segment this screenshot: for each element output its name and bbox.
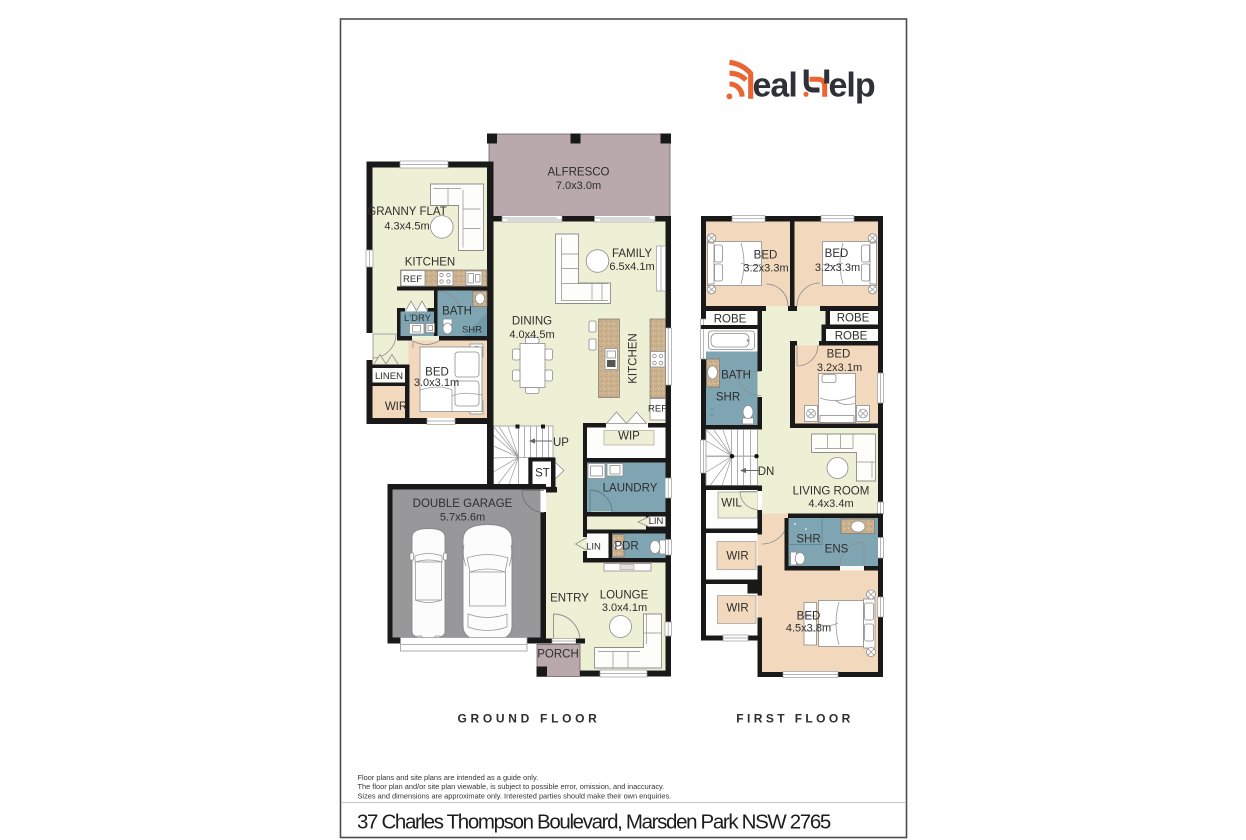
svg-text:3.2x3.1m: 3.2x3.1m xyxy=(817,362,862,374)
svg-text:LIN: LIN xyxy=(586,542,601,553)
svg-text:4.0x4.5m: 4.0x4.5m xyxy=(509,329,554,341)
svg-text:DN: DN xyxy=(758,466,775,478)
svg-text:L'DRY: L'DRY xyxy=(404,313,432,324)
svg-text:LIN: LIN xyxy=(649,516,664,527)
svg-text:DINING: DINING xyxy=(512,316,552,328)
svg-text:LIVING ROOM: LIVING ROOM xyxy=(793,486,870,498)
svg-text:WIP: WIP xyxy=(618,431,640,443)
svg-text:eal: eal xyxy=(753,67,797,105)
svg-text:REF: REF xyxy=(403,274,422,285)
svg-text:SHR: SHR xyxy=(796,534,820,546)
svg-text:LAUNDRY: LAUNDRY xyxy=(603,483,658,495)
svg-text:BED: BED xyxy=(825,248,849,260)
svg-text:ALFRESCO: ALFRESCO xyxy=(548,167,610,179)
svg-text:LOUNGE: LOUNGE xyxy=(600,590,649,602)
svg-text:LINEN: LINEN xyxy=(375,371,403,382)
svg-text:3.2x3.3m: 3.2x3.3m xyxy=(743,263,788,275)
svg-text:elp: elp xyxy=(829,67,875,105)
svg-text:BATH: BATH xyxy=(442,306,472,318)
svg-text:ENS: ENS xyxy=(825,544,849,556)
svg-text:DOUBLE GARAGE: DOUBLE GARAGE xyxy=(413,498,513,510)
svg-text:GROUND FLOOR: GROUND FLOOR xyxy=(457,712,600,726)
svg-text:PDR: PDR xyxy=(614,541,638,553)
svg-text:SHR: SHR xyxy=(716,392,740,404)
svg-text:FIRST FLOOR: FIRST FLOOR xyxy=(736,712,853,726)
svg-text:ENTRY: ENTRY xyxy=(550,593,589,605)
svg-text:BED: BED xyxy=(797,611,821,623)
svg-text:6.5x4.1m: 6.5x4.1m xyxy=(609,261,654,273)
svg-text:PORCH: PORCH xyxy=(537,649,579,661)
svg-text:Sizes and dimensions are appro: Sizes and dimensions are approximate onl… xyxy=(358,791,672,800)
svg-text:ROBE: ROBE xyxy=(714,314,747,326)
svg-text:3.0x3.1m: 3.0x3.1m xyxy=(414,377,459,389)
svg-text:WIR: WIR xyxy=(726,551,748,563)
svg-text:BED: BED xyxy=(754,250,778,262)
svg-text:KITCHEN: KITCHEN xyxy=(405,257,455,269)
svg-text:3.2x3.3m: 3.2x3.3m xyxy=(815,262,860,274)
svg-text:7.0x3.0m: 7.0x3.0m xyxy=(556,180,601,192)
svg-text:4.3x4.5m: 4.3x4.5m xyxy=(384,221,429,233)
svg-text:WIL: WIL xyxy=(721,498,742,510)
svg-text:ST: ST xyxy=(535,468,550,480)
svg-text:SHR: SHR xyxy=(462,325,482,336)
svg-text:3.0x4.1m: 3.0x4.1m xyxy=(602,602,647,614)
svg-text:4.4x3.4m: 4.4x3.4m xyxy=(808,498,853,510)
svg-text:UP: UP xyxy=(553,437,569,449)
svg-text:ROBE: ROBE xyxy=(835,331,868,343)
svg-text:GRANNY FLAT: GRANNY FLAT xyxy=(367,206,446,218)
svg-text:37 Charles Thompson Boulevard,: 37 Charles Thompson Boulevard, Marsden P… xyxy=(357,811,831,834)
svg-text:WIR: WIR xyxy=(385,401,407,413)
svg-text:ROBE: ROBE xyxy=(837,313,870,325)
svg-text:BATH: BATH xyxy=(721,370,751,382)
svg-text:FAMILY: FAMILY xyxy=(612,248,652,260)
svg-text:The floor plan and/or site pla: The floor plan and/or site plan viewable… xyxy=(358,782,665,791)
svg-text:REF: REF xyxy=(648,404,667,415)
svg-text:BED: BED xyxy=(827,349,851,361)
svg-text:4.5x3.8m: 4.5x3.8m xyxy=(786,623,831,635)
svg-text:WIR: WIR xyxy=(726,603,748,615)
svg-text:5.7x5.6m: 5.7x5.6m xyxy=(440,512,485,524)
svg-text:KITCHEN: KITCHEN xyxy=(628,333,640,383)
svg-text:Floor plans and site plans are: Floor plans and site plans are intended … xyxy=(358,773,539,782)
